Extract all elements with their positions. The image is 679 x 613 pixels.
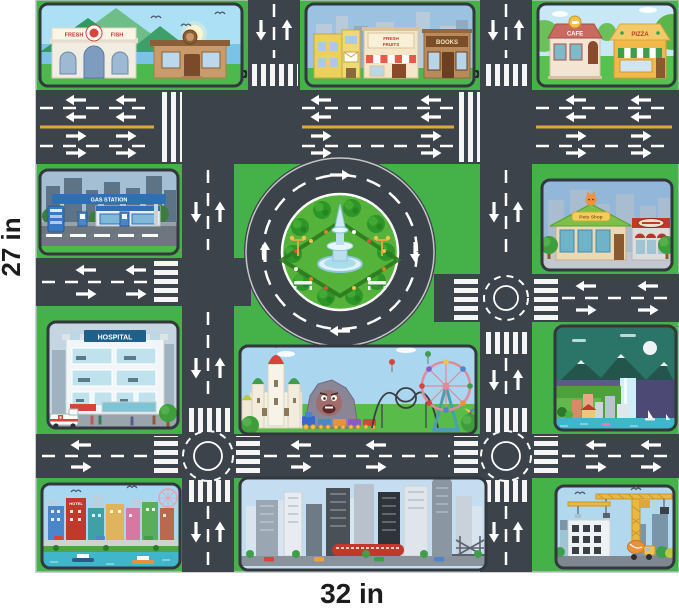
book-shop: BOOKS xyxy=(422,29,472,78)
hotel-building: HOTEL xyxy=(66,498,86,540)
scene-construction-site xyxy=(555,486,675,568)
scene-seaside-shops: FRESH FISH xyxy=(40,4,242,86)
awning-icon xyxy=(366,55,416,63)
scene-downtown-shops: FRESH FRUITS BOOKS xyxy=(306,4,474,86)
scene-pets-shop: Pets Shop xyxy=(540,180,676,270)
svg-text:FRESH: FRESH xyxy=(383,36,399,41)
striped-awning-icon xyxy=(618,48,662,58)
scene-gas-station: GAS STATION xyxy=(40,170,178,254)
play-mat: FRESH FISH xyxy=(36,0,679,572)
svg-text:FRUITS: FRUITS xyxy=(383,42,400,47)
scene-amusement-park xyxy=(240,342,479,439)
scene-cafe-pizza: CAFE PIZZA xyxy=(528,4,679,86)
svg-text:HOSPITAL: HOSPITAL xyxy=(98,335,134,342)
height-dimension-label: 27 in xyxy=(0,217,26,276)
post-office-shop xyxy=(314,30,360,78)
svg-text:GAS STATION: GAS STATION xyxy=(91,198,128,204)
svg-text:HOTEL: HOTEL xyxy=(69,501,83,506)
scene-waterfront-city: HOTEL xyxy=(42,484,180,568)
scene-downtown-skyline xyxy=(240,468,486,570)
hospital-building: HOSPITAL xyxy=(62,330,168,414)
scene-hospital: HOSPITAL xyxy=(48,322,178,429)
svg-text:PIZZA: PIZZA xyxy=(631,32,649,38)
product-image: 27 in 32 in xyxy=(0,0,679,613)
svg-text:FISH: FISH xyxy=(111,33,124,39)
scene-waterfall xyxy=(555,326,676,430)
building-under-construction xyxy=(560,520,610,558)
fresh-fish-shop: FRESH FISH xyxy=(50,25,138,78)
city-buildings: HOTEL xyxy=(48,498,174,540)
fruit-shop: FRESH FRUITS xyxy=(362,27,420,78)
svg-text:CAFE: CAFE xyxy=(567,32,583,38)
moon-icon xyxy=(643,341,657,355)
pizza-building: PIZZA xyxy=(610,24,670,78)
cafe-building: CAFE xyxy=(548,16,602,79)
width-dimension-label: 32 in xyxy=(320,578,384,609)
svg-text:Pets Shop: Pets Shop xyxy=(579,215,603,221)
svg-text:FRESH: FRESH xyxy=(65,33,84,39)
small-ferris-wheel-icon xyxy=(159,489,177,507)
play-mat-illustration: 27 in 32 in xyxy=(0,0,679,613)
svg-text:BOOKS: BOOKS xyxy=(436,40,458,46)
